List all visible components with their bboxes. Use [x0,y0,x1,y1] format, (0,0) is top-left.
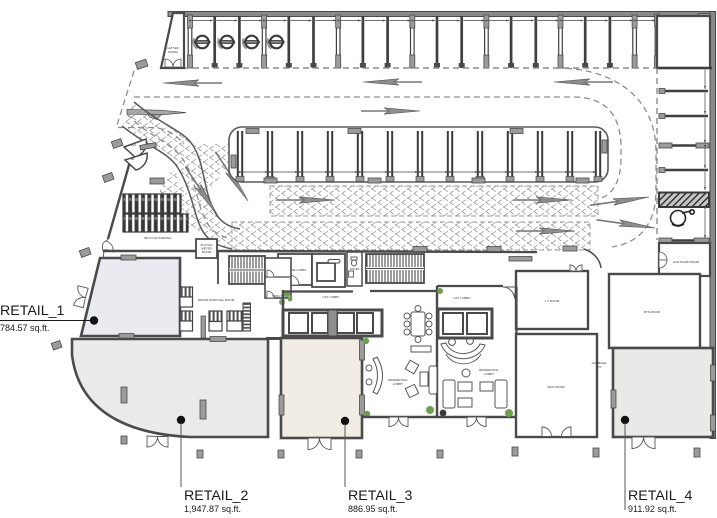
svg-text:911.92 sq.ft.: 911.92 sq.ft. [628,504,677,514]
svg-text:PIT: PIT [597,365,602,369]
svg-text:WASTE DISPOSAL ROOM: WASTE DISPOSAL ROOM [198,298,235,302]
svg-text:BICYCLE PARKING: BICYCLE PARKING [145,236,173,240]
svg-text:1,947.87 sq.ft.: 1,947.87 sq.ft. [184,504,241,514]
svg-text:MAIL ROOM: MAIL ROOM [547,385,565,389]
svg-text:LOBBY: LOBBY [484,372,494,376]
svg-text:L.V ROOM: L.V ROOM [545,299,560,303]
svg-text:LIFT LOBBY: LIFT LOBBY [323,295,340,299]
svg-text:ROOM: ROOM [202,250,212,254]
svg-text:LOBBY: LOBBY [393,382,403,386]
svg-text:BTS ROOM: BTS ROOM [644,310,661,314]
svg-text:RETAIL_3: RETAIL_3 [348,488,413,504]
svg-text:LIFT LOBBY: LIFT LOBBY [454,296,471,300]
svg-text:RETAIL_1: RETAIL_1 [0,303,65,319]
svg-text:784.57 sq.ft.: 784.57 sq.ft. [0,323,50,333]
svg-text:ROOM: ROOM [168,50,178,54]
svg-text:LV1: LV1 [131,143,136,147]
svg-text:RETAIL_2: RETAIL_2 [184,488,249,504]
svg-text:886.95 sq.ft.: 886.95 sq.ft. [348,504,398,514]
svg-text:B1: B1 [131,157,135,161]
svg-text:TOILET: TOILET [349,267,360,271]
svg-text:RETAIL_4: RETAIL_4 [628,488,693,504]
svg-text:GAS PUMP ROOM: GAS PUMP ROOM [673,260,699,264]
